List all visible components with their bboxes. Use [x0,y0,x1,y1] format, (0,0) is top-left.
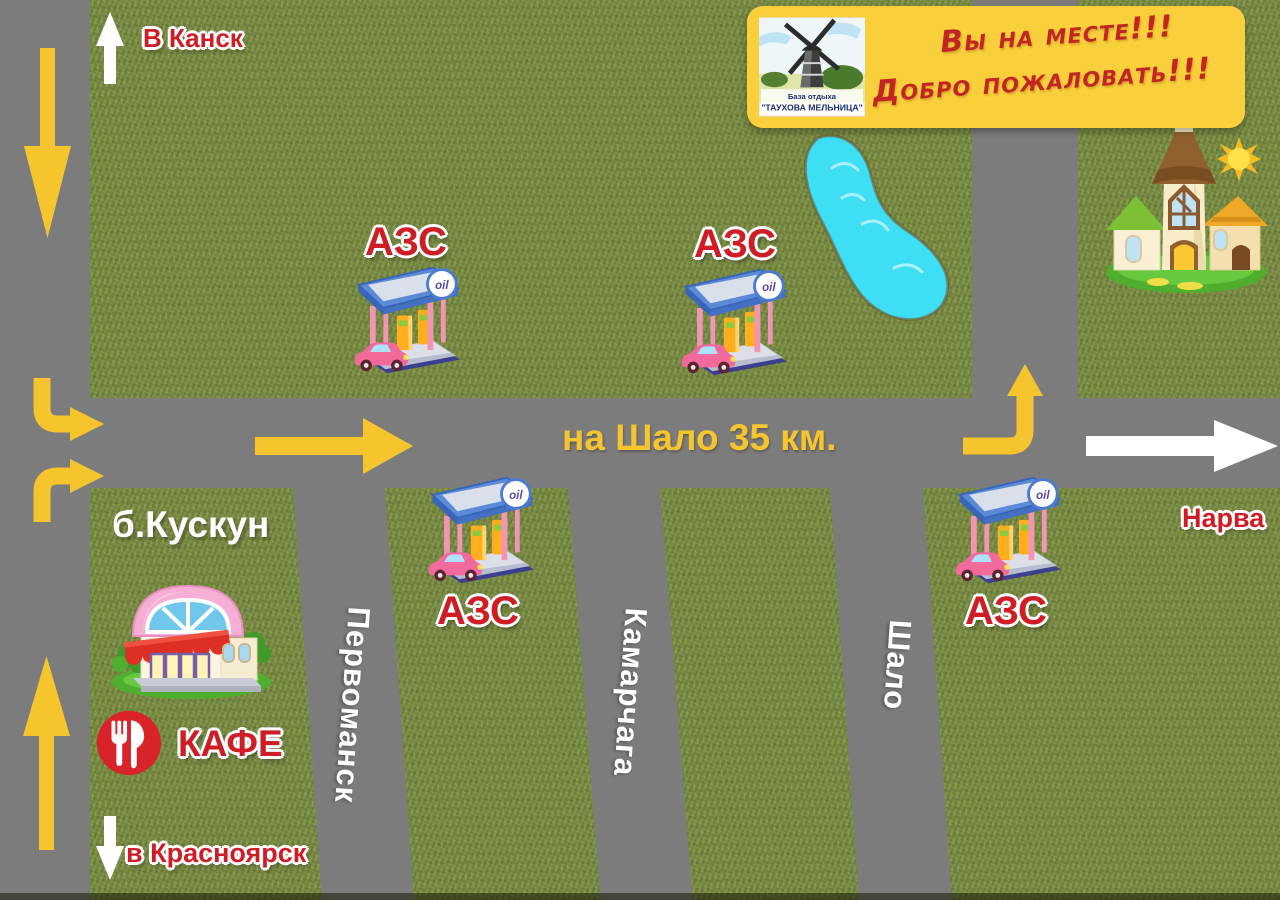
map-bottom-edge [0,893,1280,900]
turn-east-from-south-icon [30,442,108,522]
road-name-shalo: Шало [876,619,918,712]
route-arrow-east-icon [255,418,415,474]
label-gas-station: АЗС [694,224,776,264]
turn-north-to-destination-icon [963,358,1053,458]
welcome-banner: База отдыха "ТАУХОВА МЕЛЬНИЦА" Вы на мес… [747,6,1245,128]
gas-station-icon [421,470,536,585]
label-kuskun: б.Кускун [112,506,269,543]
arrow-east-narva-icon [1086,418,1280,474]
route-arrow-south-icon [24,48,71,238]
gas-station-icon [347,260,462,375]
label-gas-station: АЗС [437,591,519,631]
gas-station-icon [674,262,789,377]
label-narva: Нарва [1182,505,1264,532]
gas-station-icon [948,470,1063,585]
label-gas-station: АЗС [365,222,447,262]
lake-icon [778,128,983,333]
label-cafe: КАФЕ [178,725,283,762]
route-arrow-north-icon [23,656,70,850]
sun-icon [1217,137,1261,181]
cafe-building-icon [103,562,273,702]
cafe-icon [94,708,164,778]
label-route-east: на Шало 35 км. [562,419,836,456]
logo-caption-top: База отдыха [788,92,837,101]
arrow-south-krasnoyarsk-icon [96,816,124,882]
label-to-krasnoyarsk: в Красноярск [126,840,306,867]
label-gas-station: АЗС [965,591,1047,631]
arrow-north-kansk-icon [96,12,124,84]
route-map: oil [0,0,1280,900]
label-to-kansk: В Канск [143,25,243,51]
